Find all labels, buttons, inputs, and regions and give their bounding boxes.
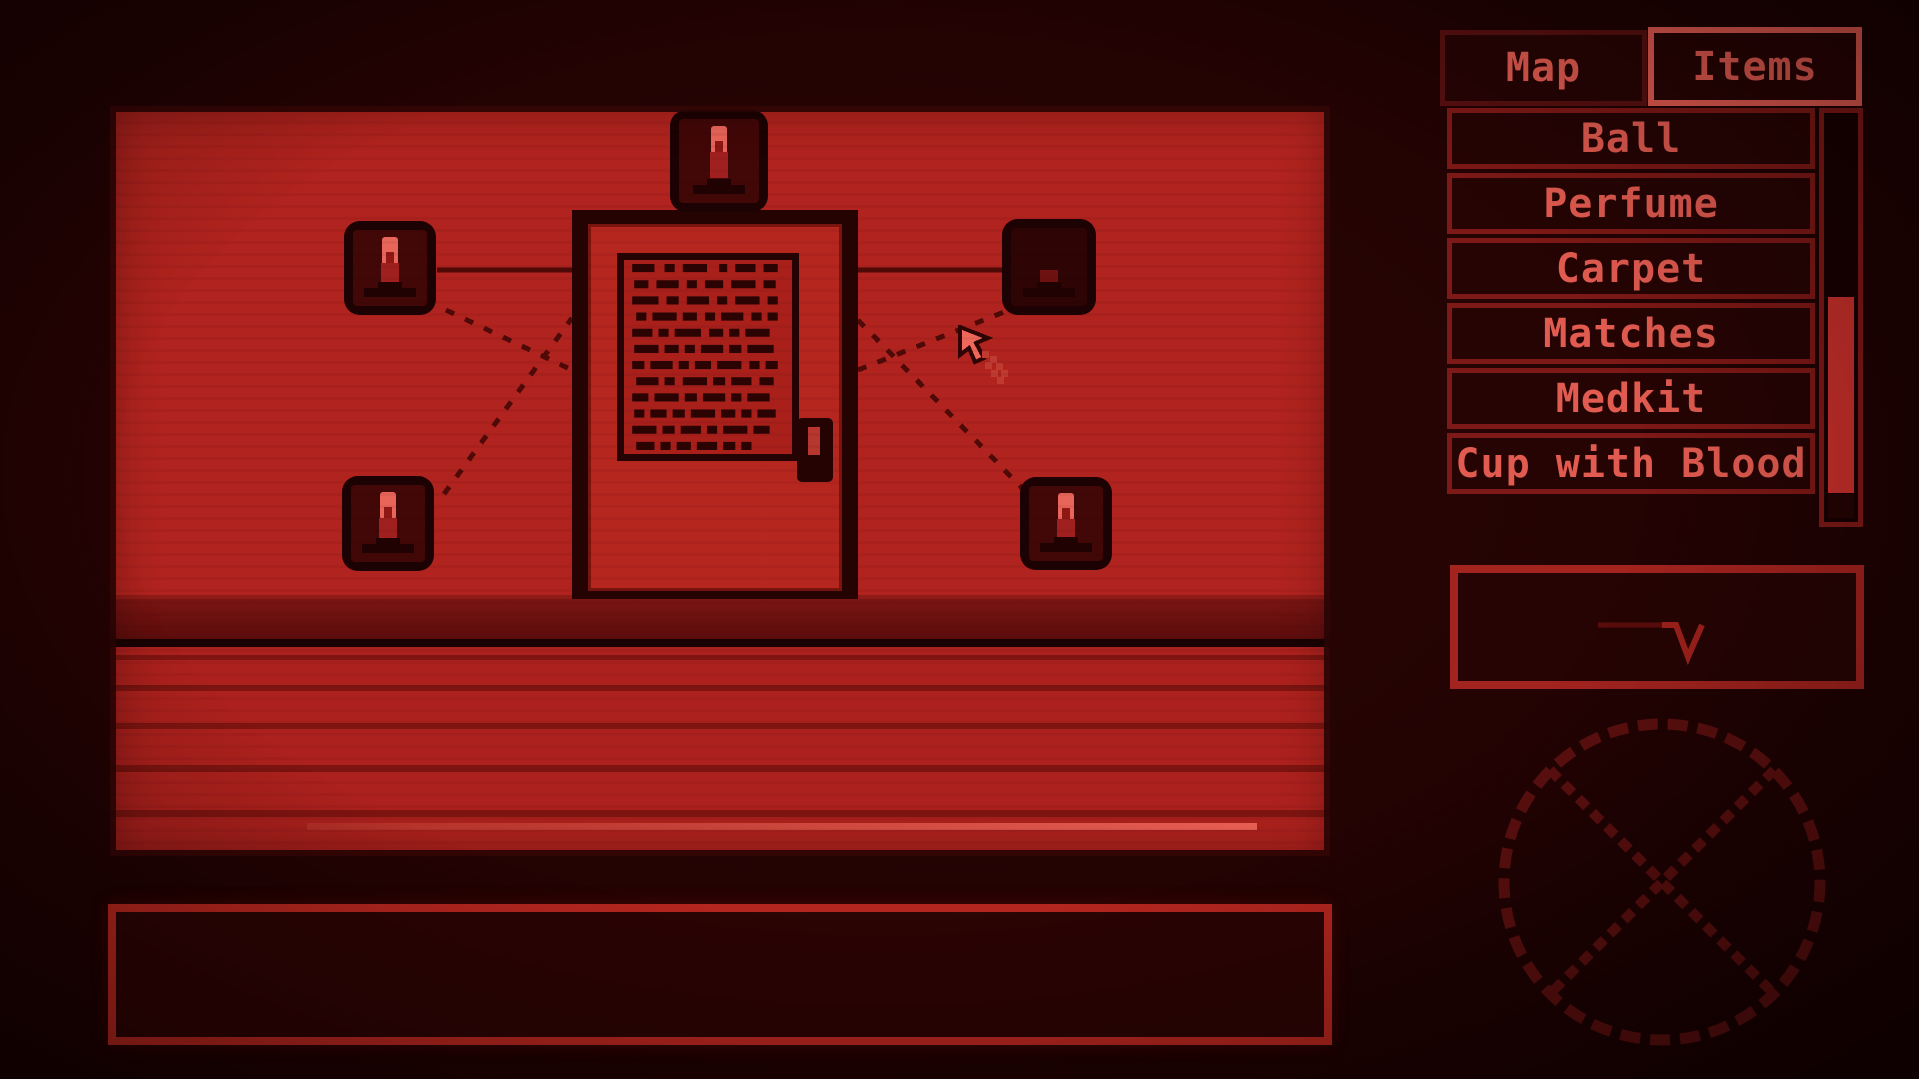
candle-upper-left[interactable] xyxy=(344,221,436,315)
candle-sconce xyxy=(351,485,425,562)
note-scribbles xyxy=(624,260,792,454)
tab-map-label: Map xyxy=(1506,45,1581,91)
candle-upper-right[interactable] xyxy=(1002,219,1096,315)
item-row-perfume[interactable]: Perfume xyxy=(1447,173,1815,234)
tab-items-label: Items xyxy=(1692,44,1817,90)
flame-icon xyxy=(380,492,396,520)
flame-icon xyxy=(382,237,398,265)
heart-monitor xyxy=(1450,565,1864,689)
candle-base xyxy=(1040,543,1092,552)
item-label: Cup with Blood xyxy=(1455,441,1806,487)
item-label: Matches xyxy=(1543,311,1719,357)
message-box xyxy=(108,904,1332,1045)
scrollbar-nub xyxy=(1828,494,1854,518)
item-label: Carpet xyxy=(1556,246,1707,292)
tab-items[interactable]: Items xyxy=(1648,27,1862,106)
candle-lower-left[interactable] xyxy=(342,476,434,571)
item-row-ball[interactable]: Ball xyxy=(1447,108,1815,169)
candle-wax xyxy=(710,152,728,178)
item-row-cup-with-blood[interactable]: Cup with Blood xyxy=(1447,433,1815,494)
pulse-line xyxy=(1458,573,1856,681)
scrollbar-thumb[interactable] xyxy=(1828,297,1854,493)
item-row-medkit[interactable]: Medkit xyxy=(1447,368,1815,429)
game-viewport[interactable] xyxy=(110,106,1330,856)
candle-sconce xyxy=(679,119,759,203)
door[interactable] xyxy=(572,210,858,599)
item-row-carpet[interactable]: Carpet xyxy=(1447,238,1815,299)
item-label: Perfume xyxy=(1543,181,1719,227)
candle-base xyxy=(362,544,414,553)
candle-base xyxy=(693,185,745,194)
candle-base xyxy=(1023,288,1075,297)
candle-lower-right[interactable] xyxy=(1020,477,1112,570)
candle-sconce xyxy=(1029,486,1103,561)
flame-icon xyxy=(711,126,727,154)
items-scrollbar[interactable] xyxy=(1819,108,1863,527)
items-list: Ball Perfume Carpet Matches Medkit Cup w… xyxy=(1447,108,1863,498)
tab-map[interactable]: Map xyxy=(1440,30,1647,106)
candle-top[interactable] xyxy=(670,110,768,212)
cursor-icon xyxy=(956,325,1018,387)
item-label: Ball xyxy=(1581,116,1681,162)
flame-icon xyxy=(1058,493,1074,521)
door-handle xyxy=(797,418,833,482)
candle-base xyxy=(364,288,416,297)
door-note[interactable] xyxy=(617,253,799,461)
item-row-matches[interactable]: Matches xyxy=(1447,303,1815,364)
crossed-circle-icon xyxy=(1488,712,1836,1054)
item-label: Medkit xyxy=(1556,376,1707,422)
candle-sconce xyxy=(353,230,427,306)
candle-sconce xyxy=(1011,228,1087,306)
